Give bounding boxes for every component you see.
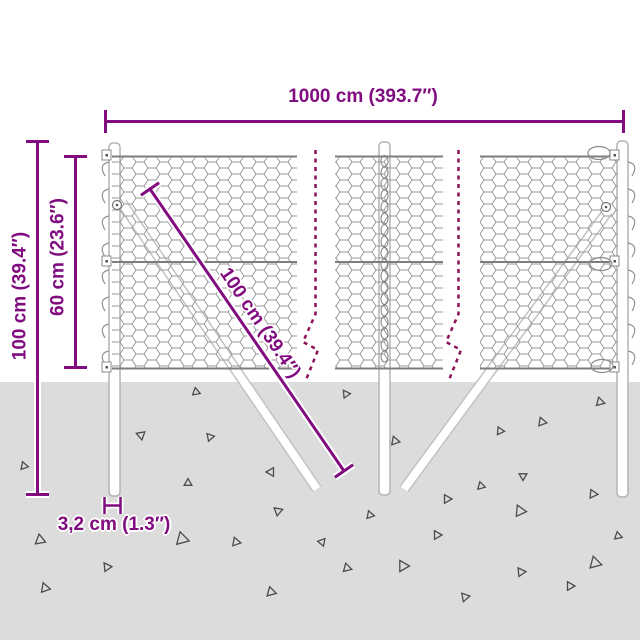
dimension-label-mesh-height: 60 cm (23.6″)	[49, 198, 68, 316]
fence-dimension-diagram: 1000 cm (393.7″) 100 cm (39.4″) 60 cm (2…	[0, 0, 640, 640]
dimension-label-total-height: 100 cm (39.4″)	[11, 232, 30, 360]
break-line-left	[303, 150, 318, 380]
dimension-label-post-thickness: 3,2 cm (1.3″)	[58, 515, 171, 534]
dim-line-total-width	[105, 110, 624, 133]
wire-mesh	[112, 156, 618, 369]
dimension-label-total-width: 1000 cm (393.7″)	[288, 87, 438, 106]
break-line-right	[446, 150, 461, 380]
post-right	[617, 141, 628, 497]
